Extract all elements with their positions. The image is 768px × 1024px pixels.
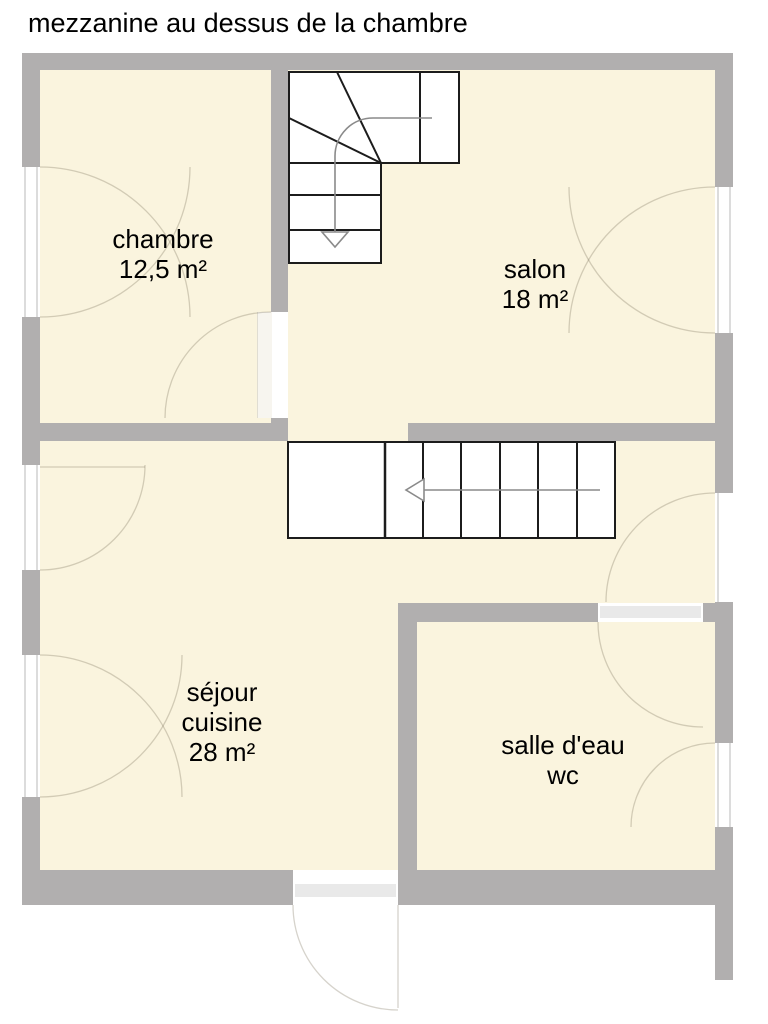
door-salle-eau-leaf <box>600 606 701 618</box>
window-salle-eau <box>715 743 733 827</box>
window-glazing-line <box>717 493 719 602</box>
room-area: 28 m² <box>116 737 328 767</box>
wall-left-1 <box>22 53 40 167</box>
plan-title: mezzanine au dessus de la chambre <box>28 8 468 39</box>
window-glazing-line <box>24 167 26 317</box>
room-area: 12,5 m² <box>58 254 268 284</box>
window-glazing-line <box>24 655 26 797</box>
exterior-door-hall <box>715 493 733 602</box>
room-name: salon <box>430 254 640 284</box>
floor-plan: mezzanine au dessus de la chambre <box>0 0 768 1024</box>
window-glazing-line <box>729 743 731 827</box>
wall-right-3 <box>715 602 733 743</box>
wall-chambre-salon-upper <box>271 70 288 312</box>
door-swing-arc <box>293 905 398 1010</box>
window-salon <box>715 187 733 333</box>
wall-bottom-right <box>398 870 733 905</box>
entrance-door <box>293 870 398 905</box>
door-chambre <box>271 312 288 418</box>
wall-salon-bottom <box>408 423 715 441</box>
door-chambre-leaf <box>257 312 272 418</box>
wall-salle-eau-top-corner <box>703 603 733 622</box>
window-glazing-line <box>36 465 38 570</box>
wall-salle-eau-left <box>398 622 417 872</box>
wall-salle-eau-top <box>398 603 598 622</box>
room-name: salle d'eau <box>450 730 676 760</box>
room-label-chambre: chambre 12,5 m² <box>58 224 268 284</box>
wall-right-2 <box>715 333 733 493</box>
wall-right-1 <box>715 53 733 187</box>
window-glazing-line <box>36 167 38 317</box>
window-sejour-2 <box>22 655 40 797</box>
wall-left-3 <box>22 570 40 655</box>
room-label-sejour: séjour cuisine 28 m² <box>116 677 328 767</box>
window-glazing-line <box>729 187 731 333</box>
room-name-2: wc <box>450 760 676 790</box>
room-name-2: cuisine <box>116 707 328 737</box>
room-area: 18 m² <box>430 284 640 314</box>
window-sejour-1 <box>22 465 40 570</box>
door-salle-eau <box>598 603 703 622</box>
wall-top <box>22 53 733 70</box>
room-label-salle-eau: salle d'eau wc <box>450 730 676 790</box>
window-glazing-line <box>24 465 26 570</box>
window-glazing-line <box>717 187 719 333</box>
wall-bottom-left <box>22 870 293 905</box>
window-glazing-line <box>36 655 38 797</box>
room-name: séjour <box>116 677 328 707</box>
entrance-door-leaf <box>295 884 396 897</box>
window-chambre <box>22 167 40 317</box>
wall-chambre-sejour <box>22 423 288 441</box>
room-name: chambre <box>58 224 268 254</box>
room-label-salon: salon 18 m² <box>430 254 640 314</box>
wall-left-2 <box>22 317 40 465</box>
window-glazing-line <box>717 743 719 827</box>
